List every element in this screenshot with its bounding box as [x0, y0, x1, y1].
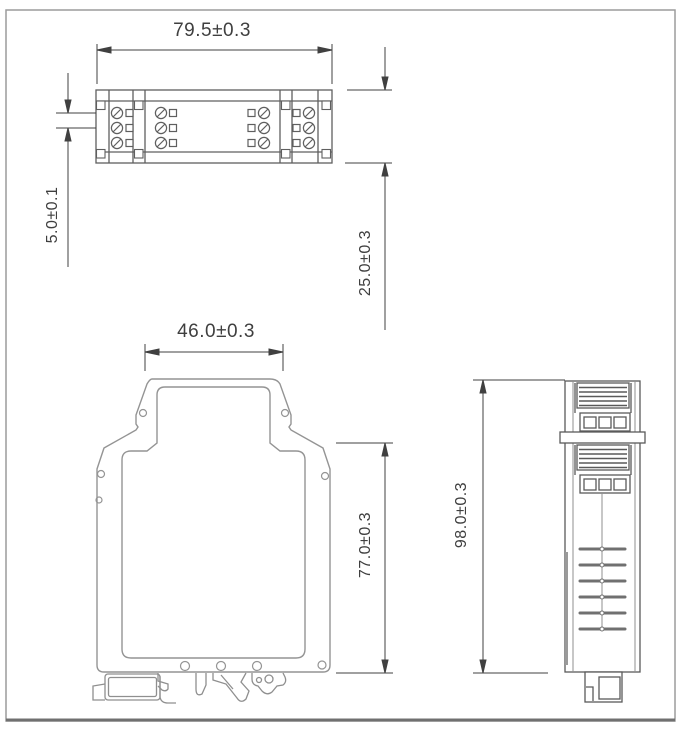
- block-separator: [560, 432, 645, 443]
- dim-front-top-width-label: 46.0±0.3: [177, 321, 255, 343]
- dim-top-width-lines: [97, 44, 332, 84]
- dim-overall-height-label: 98.0±0.3: [453, 482, 471, 548]
- dim-overall-height-lines: [473, 380, 565, 673]
- dimension-drawing-page: 79.5±0.3 46.0±0.3 5.0±0.1 25.0±0.3 77.0±…: [0, 0, 682, 730]
- terminal-block-upper: [575, 383, 631, 431]
- din-clip: [93, 673, 286, 703]
- dim-top-width-label: 79.5±0.3: [173, 20, 251, 42]
- top-view: [96, 90, 332, 163]
- dim-front-top-width-lines: [145, 344, 283, 371]
- dim-module-depth-label: 25.0±0.3: [357, 230, 375, 296]
- front-view: [93, 379, 330, 703]
- front-outer-outline: [97, 379, 330, 672]
- side-foot: [585, 672, 622, 702]
- dim-body-height-label: 77.0±0.3: [357, 512, 375, 578]
- dim-terminal-pitch-label: 5.0±0.1: [44, 187, 62, 244]
- dim-terminal-pitch-lines: [56, 73, 96, 267]
- technical-drawing: [0, 0, 682, 730]
- side-view: [560, 381, 645, 702]
- terminal-block-lower: [575, 445, 631, 493]
